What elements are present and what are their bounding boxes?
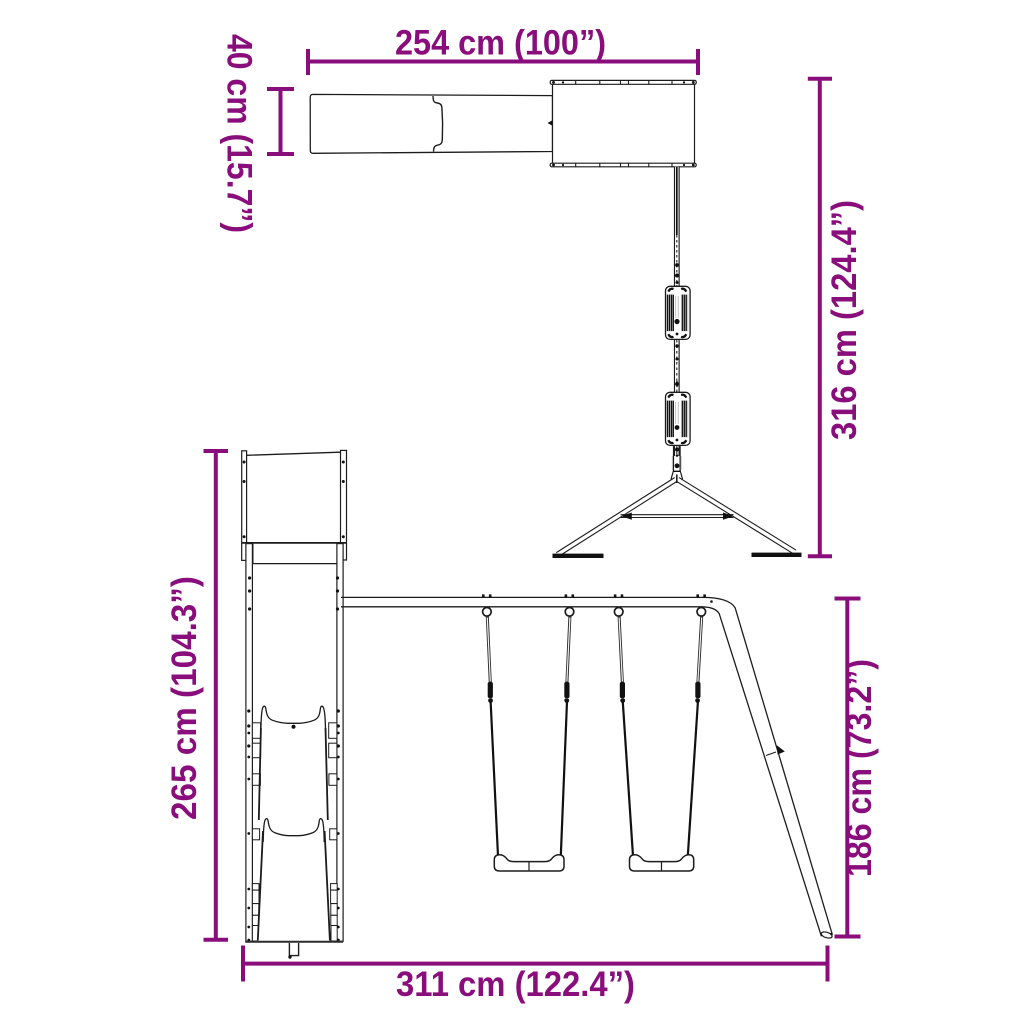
svg-text:254 cm (100”): 254 cm (100”): [395, 24, 606, 63]
svg-text:186 cm (73.2”): 186 cm (73.2”): [840, 659, 879, 877]
svg-text:311 cm (122.4”): 311 cm (122.4”): [396, 965, 635, 1004]
svg-text:316 cm (124.4”): 316 cm (124.4”): [825, 200, 864, 440]
svg-text:265 cm (104.3”): 265 cm (104.3”): [165, 576, 204, 820]
svg-text:40 cm (15.7”): 40 cm (15.7”): [220, 34, 259, 233]
